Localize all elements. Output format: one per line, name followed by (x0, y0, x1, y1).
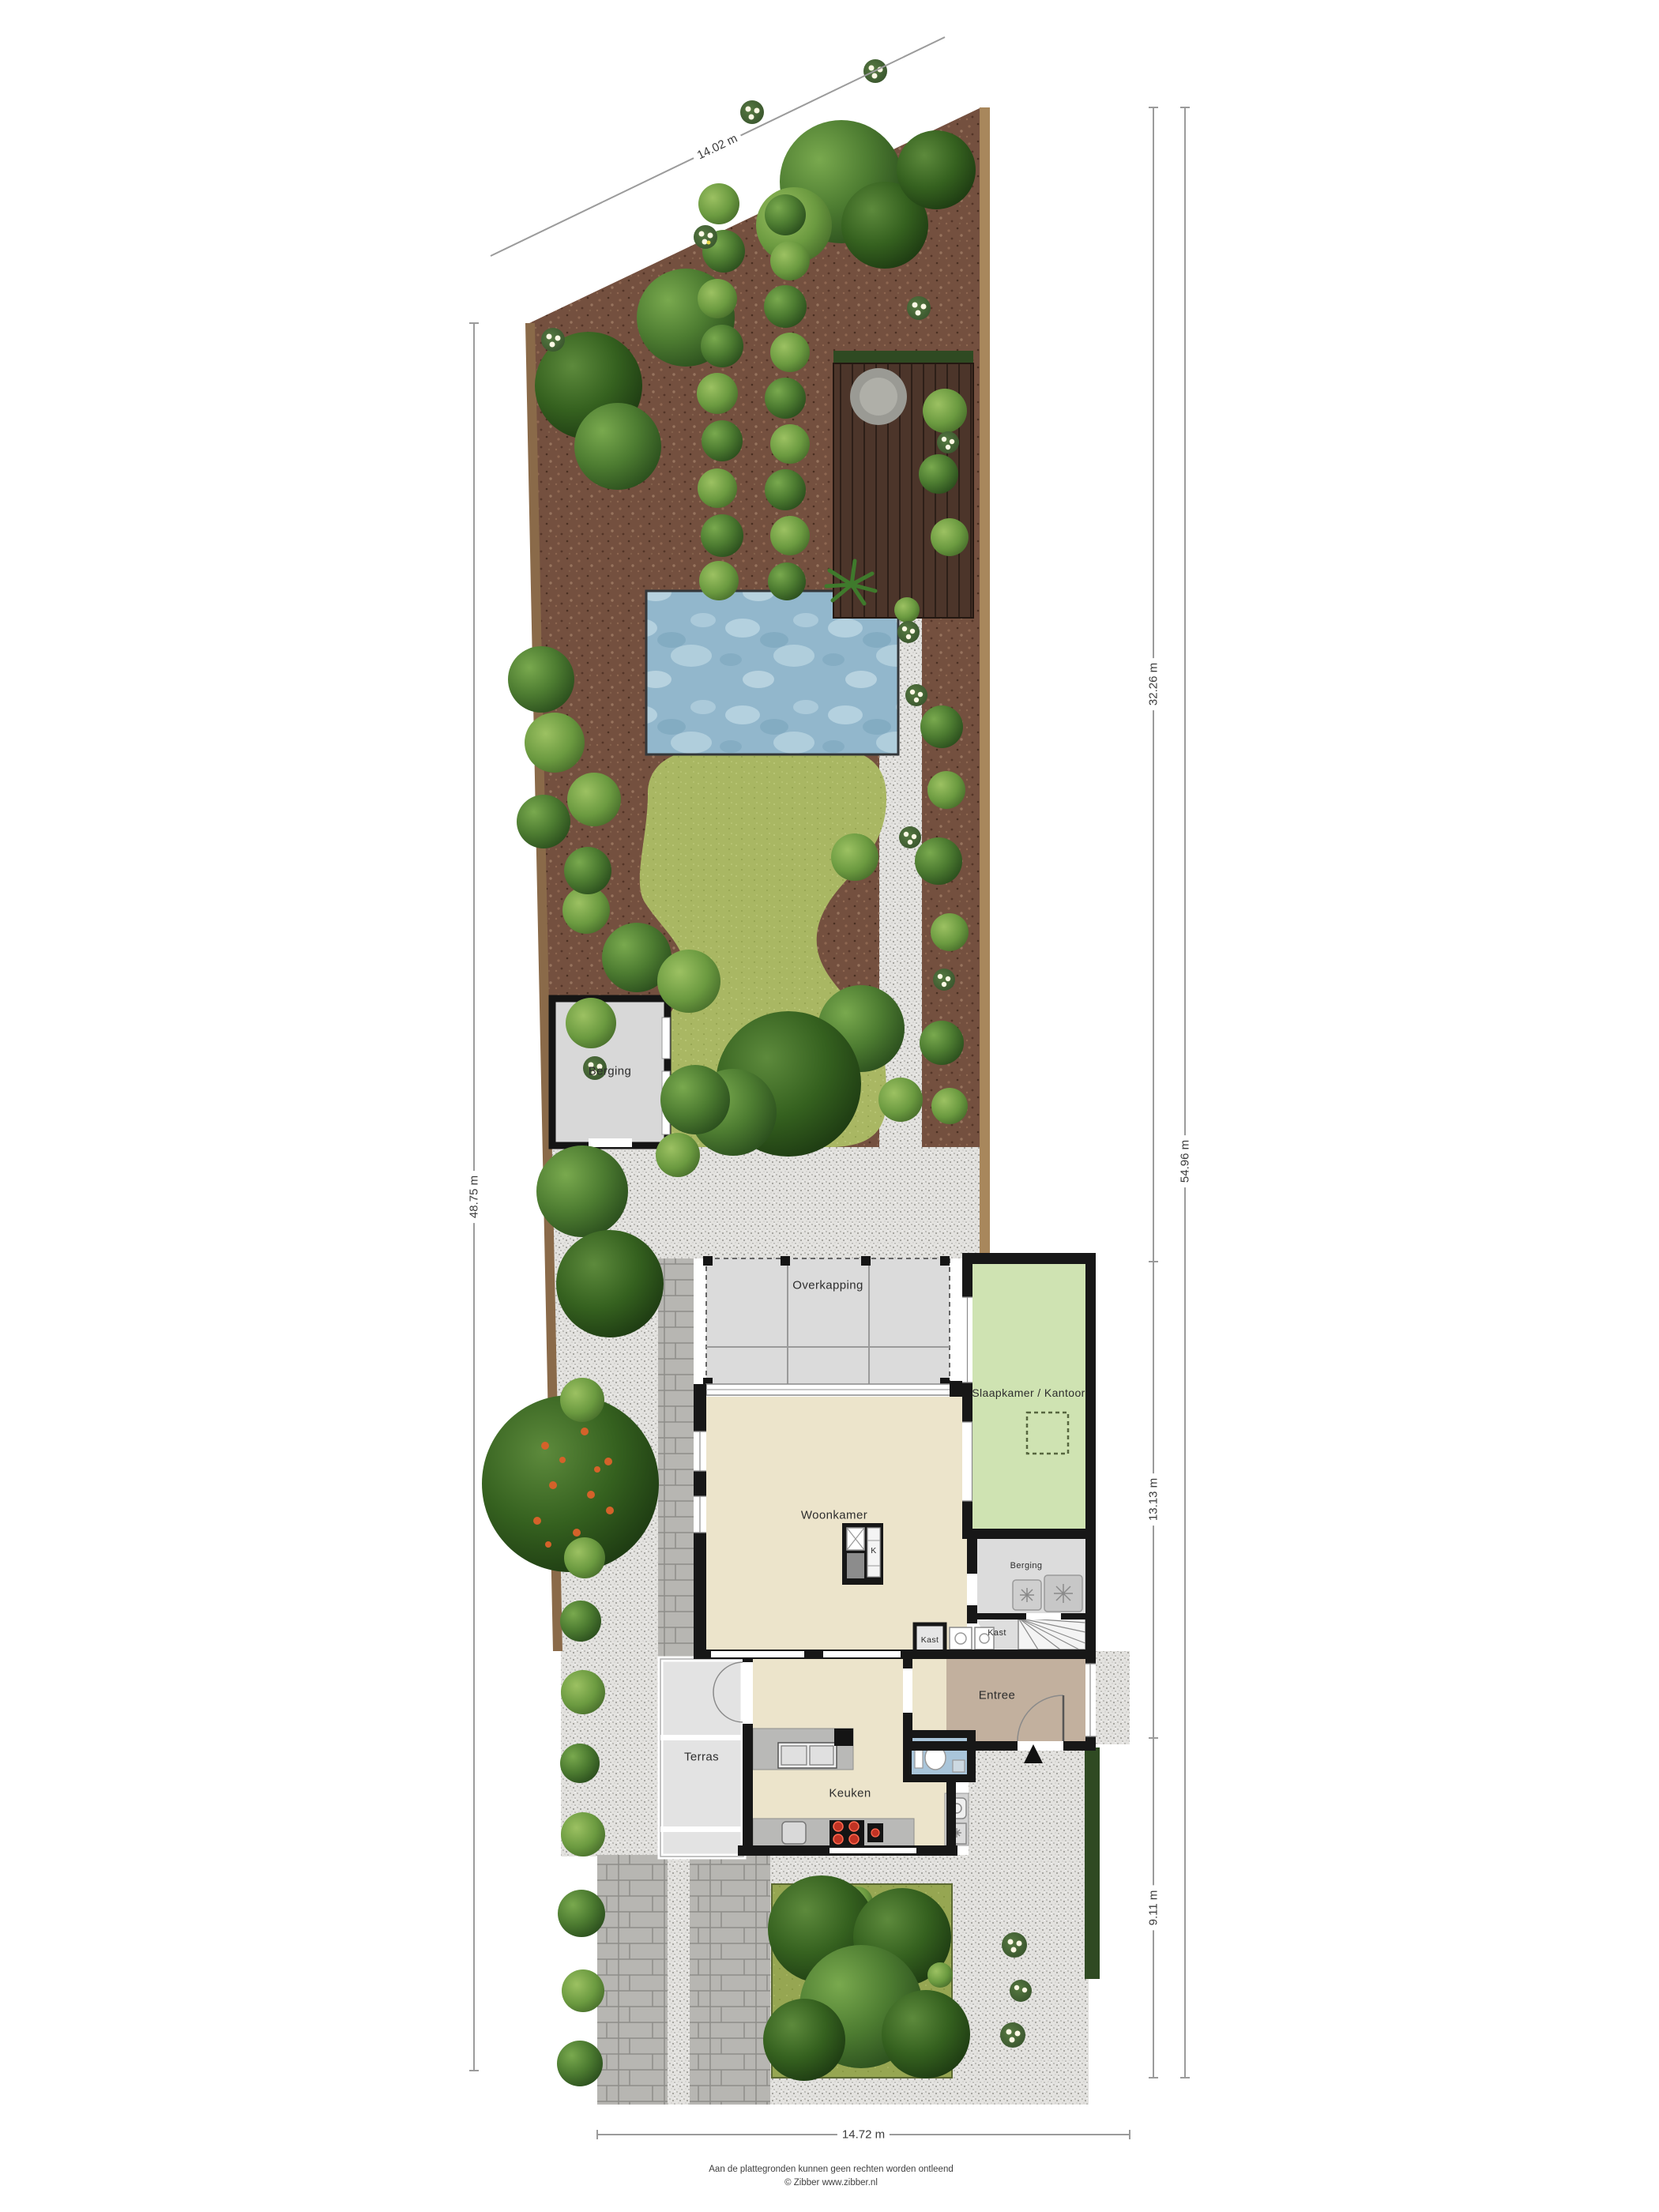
storage-label: Berging (1010, 1561, 1043, 1571)
site-plan-drawing (0, 0, 1659, 2212)
site-plan: Berging Overkapping Slaapkamer / Kantoor… (0, 0, 1659, 2212)
small-closet-label: Kast (921, 1635, 939, 1645)
dim-left: 48.75 m (467, 1171, 482, 1223)
dim-right-lower: 9.11 m (1146, 1886, 1161, 1931)
bedroom-office-label: Slaapkamer / Kantoor (972, 1386, 1085, 1399)
counter-sink (782, 1822, 806, 1844)
overkapping-area (706, 1258, 950, 1386)
closet-label: Kast (987, 1628, 1006, 1638)
fireplace-kitchen-unit (842, 1523, 883, 1585)
footer-disclaimer: Aan de plattegronden kunnen geen rechten… (709, 2165, 953, 2174)
washer-dryer (1013, 1575, 1082, 1612)
kitchen-label: Keuken (829, 1787, 871, 1800)
overkapping-label: Overkapping (792, 1279, 863, 1292)
fence-right (980, 107, 990, 1258)
living-room-label: Woonkamer (801, 1509, 867, 1522)
dim-right-middle: 13.13 m (1146, 1473, 1161, 1525)
staircase (1018, 1618, 1085, 1650)
island-column (834, 1729, 853, 1746)
toilet-sink (953, 1760, 965, 1772)
kitchen-island (753, 1729, 853, 1770)
terrace-label: Terras (684, 1751, 719, 1764)
dim-right-upper: 32.26 m (1146, 658, 1161, 710)
shed-label: Berging (589, 1065, 632, 1078)
toilet-room (903, 1730, 976, 1782)
sliding-door-band (706, 1384, 962, 1395)
kitchen-unit-label: K (871, 1546, 876, 1556)
hedge-right (1085, 1747, 1100, 1979)
footer-credit: © Zibber www.zibber.nl (784, 2178, 878, 2188)
kitchen-counter (753, 1819, 914, 1847)
dim-right-total: 54.96 m (1178, 1135, 1193, 1187)
dim-bottom: 14.72 m (837, 2127, 890, 2142)
entry-label: Entree (979, 1689, 1016, 1702)
